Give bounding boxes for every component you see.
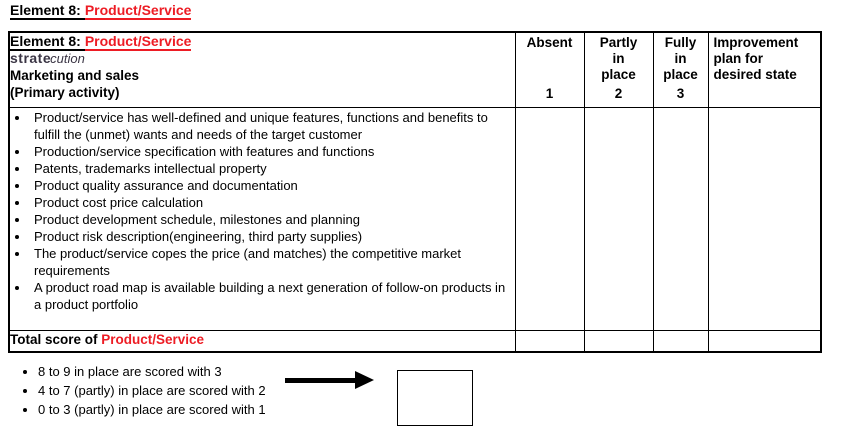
score-cell-partly[interactable] — [584, 107, 653, 330]
score-cell-fully[interactable] — [653, 107, 708, 330]
category-label: Marketing and sales — [10, 67, 515, 84]
checklist: Product/service has well-defined and uni… — [10, 109, 515, 313]
column-header-partly-content: Partly in place 2 — [585, 33, 653, 103]
checklist-item: Product/service has well-defined and uni… — [30, 109, 515, 143]
total-score-prefix: Total score of — [10, 332, 101, 347]
logo-text-strate: strate — [10, 50, 51, 66]
checklist-row: Product/service has well-defined and uni… — [9, 107, 821, 330]
stratecution-logo: stratecution — [10, 50, 515, 67]
legend-item: 4 to 7 (partly) in place are scored with… — [38, 381, 266, 400]
column-label-fully: Fully in place — [654, 35, 708, 83]
element-title: Element 8:Product/Service — [10, 33, 515, 50]
checklist-item: Product cost price calculation — [30, 194, 515, 211]
checklist-item: A product road map is available building… — [30, 279, 515, 313]
element-header-cell: Element 8:Product/Service stratecution M… — [9, 32, 515, 107]
column-header-partly: Partly in place 2 — [584, 32, 653, 107]
element-title-prefix: Element 8: — [10, 33, 85, 51]
column-header-absent: Absent 1 — [515, 32, 584, 107]
assessment-table: Element 8:Product/Service stratecution M… — [8, 31, 822, 353]
column-number-1: 1 — [516, 86, 584, 101]
column-header-improvement: Improvement plan for desired state — [708, 32, 821, 107]
column-header-fully-content: Fully in place 3 — [654, 33, 708, 103]
total-score-label-cell: Total score of Product/Service — [9, 330, 515, 352]
column-header-fully: Fully in place 3 — [653, 32, 708, 107]
checklist-item: Product risk description(engineering, th… — [30, 228, 515, 245]
improvement-plan-cell[interactable] — [708, 107, 821, 330]
column-number-2: 2 — [585, 86, 653, 101]
page-title-prefix: Element 8: — [10, 2, 85, 20]
total-score-highlight: Product/Service — [101, 332, 204, 347]
total-score-row: Total score of Product/Service — [9, 330, 821, 352]
scoring-legend: 8 to 9 in place are scored with 3 4 to 7… — [12, 362, 266, 419]
column-label-improvement: Improvement plan for desired state — [709, 33, 821, 83]
column-number-3: 3 — [654, 86, 708, 101]
column-label-absent: Absent — [516, 35, 584, 51]
column-label-partly: Partly in place — [585, 35, 653, 83]
page-title: Element 8:Product/Service — [10, 2, 191, 18]
arrow-head — [355, 371, 374, 389]
total-cell-improvement[interactable] — [708, 330, 821, 352]
column-header-absent-content: Absent 1 — [516, 33, 584, 103]
legend-item: 8 to 9 in place are scored with 3 — [38, 362, 266, 381]
page-title-highlight: Product/Service — [85, 2, 192, 20]
legend-item: 0 to 3 (partly) in place are scored with… — [38, 400, 266, 419]
checklist-item: Product development schedule, milestones… — [30, 211, 515, 228]
table-header-row: Element 8:Product/Service stratecution M… — [9, 32, 821, 107]
checklist-item: The product/service copes the price (and… — [30, 245, 515, 279]
checklist-item: Production/service specification with fe… — [30, 143, 515, 160]
total-cell-fully[interactable] — [653, 330, 708, 352]
arrow-shaft — [285, 378, 356, 383]
element-title-highlight: Product/Service — [85, 33, 192, 51]
arrow-icon — [285, 369, 375, 391]
total-cell-absent[interactable] — [515, 330, 584, 352]
checklist-item: Patents, trademarks intellectual propert… — [30, 160, 515, 177]
activity-label: (Primary activity) — [10, 84, 515, 101]
logo-text-cution: cution — [50, 51, 85, 66]
checklist-cell: Product/service has well-defined and uni… — [9, 107, 515, 330]
total-score-box[interactable] — [397, 370, 473, 426]
checklist-item: Product quality assurance and documentat… — [30, 177, 515, 194]
score-cell-absent[interactable] — [515, 107, 584, 330]
total-cell-partly[interactable] — [584, 330, 653, 352]
